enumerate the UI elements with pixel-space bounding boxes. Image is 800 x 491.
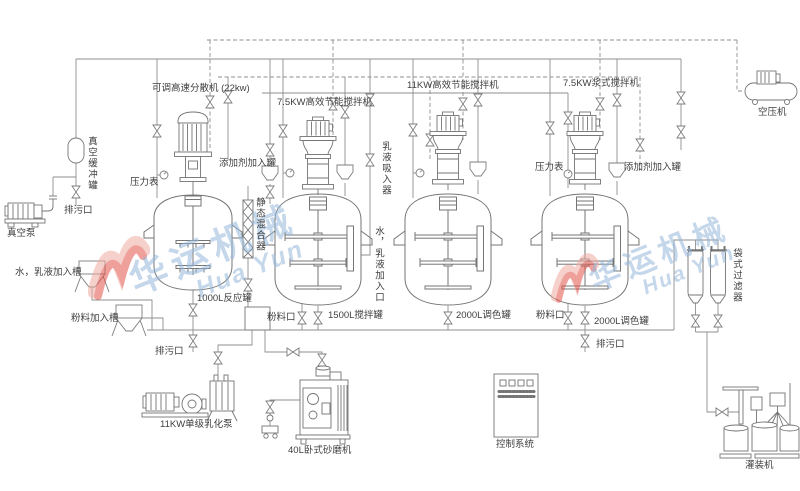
label-mixer-paddle: 7.5KW浆式搅拌机: [563, 79, 639, 89]
label-additive-tank-t4: 添加剂加入罐: [624, 163, 681, 173]
label-tinting-tank-2000l-b: 2000L调色罐: [594, 317, 649, 327]
valve-icon: [266, 144, 274, 156]
valve-icon: [564, 312, 572, 324]
label-drain-t1: 排污口: [155, 347, 184, 357]
label-pressure-gauge-t4: 压力表: [535, 163, 564, 173]
label-additive-tank-t1: 添加剂加入罐: [219, 159, 276, 169]
valve-icon: [266, 401, 274, 413]
valve-icon: [189, 304, 197, 316]
filling-machine: [720, 383, 799, 458]
valve-icon: [444, 312, 452, 324]
label-mixer-11kw: 11KW高效节能搅拌机: [407, 81, 499, 91]
valve-icon: [564, 112, 572, 124]
valve-icon: [266, 186, 274, 198]
valve-icon: [214, 352, 222, 364]
additive-funnel: [609, 163, 625, 177]
mixer-motor: [567, 112, 603, 190]
valve-icon: [318, 354, 326, 366]
valve-icon: [459, 98, 467, 110]
valve-icon: [279, 125, 287, 137]
label-tinting-tank-2000l-a: 2000L调色罐: [456, 311, 511, 321]
label-control-system: 控制系统: [496, 440, 534, 450]
valve-icon: [581, 335, 589, 347]
label-vacuum-buffer-tank: 真空缓冲罐: [86, 136, 96, 191]
control-cabinet: [494, 374, 538, 437]
valve-icon: [677, 92, 685, 104]
label-pressure-gauge-t1: 压力表: [130, 178, 159, 188]
vacuum-buffer-tank: [68, 138, 84, 163]
valve-icon: [244, 279, 252, 291]
valve-icon: [206, 96, 214, 108]
valve-icon: [714, 315, 722, 327]
label-sand-mill: 40L卧式砂磨机: [288, 446, 351, 456]
pressure-gauge-icon: [416, 169, 424, 177]
label-static-mixer: 静态混合器: [254, 197, 264, 252]
reactor-tank-1000l: [144, 195, 242, 290]
valve-icon: [409, 124, 417, 136]
mixer-motor: [300, 117, 336, 195]
label-drain-left: 排污口: [64, 206, 93, 216]
label-water-emulsion-inlet: 水，乳液加入口: [373, 226, 383, 303]
mobile-pump-cart: [262, 415, 278, 438]
pressure-gauge-icon: [564, 170, 572, 178]
emulsify-pump: [142, 375, 237, 421]
valve-icon: [189, 335, 197, 347]
label-vacuum-pump: 真空泵: [7, 229, 36, 239]
valve-icon: [474, 94, 482, 106]
vacuum-pump: [5, 196, 57, 227]
label-powder-port-t2: 粉料口: [267, 313, 296, 323]
valve-icon: [72, 186, 80, 198]
pressure-gauge-icon: [286, 169, 294, 177]
valve-icon: [716, 408, 728, 416]
label-filling-machine: 灌装机: [745, 461, 774, 471]
sand-mill: [296, 366, 350, 444]
label-bag-filter: 袋式过滤器: [731, 248, 741, 303]
label-drain-t4: 排污口: [596, 340, 625, 350]
valve-icon: [581, 312, 589, 324]
mixing-tank-1500l: [264, 194, 372, 305]
bag-filters: [687, 246, 727, 303]
label-powder-hopper: 粉料加入槽: [71, 314, 119, 324]
pressure-gauge-icon: [160, 171, 168, 179]
disperser-motor: [175, 112, 212, 195]
valve-icon: [314, 312, 322, 324]
label-powder-port-t4: 粉料口: [536, 311, 565, 321]
valve-icon: [613, 94, 621, 106]
label-air-compressor: 空压机: [758, 108, 787, 118]
emulsion-suction-funnel: [337, 165, 353, 179]
label-disperser: 可调高速分散机 (22kw): [152, 84, 250, 94]
label-reactor-1000l: 1000L反应罐: [197, 294, 252, 304]
valve-icon: [596, 98, 604, 110]
valve-icon: [298, 312, 306, 324]
valve-icon: [636, 139, 644, 151]
valve-icon: [677, 126, 685, 138]
label-mixing-tank-1500l: 1500L搅拌罐: [328, 311, 383, 321]
process-flow-diagram: 华运机械 Hua Yun 华运机械 Hua Yun 可调高速分散机 (22kw)…: [0, 0, 800, 491]
diagram-linework: [0, 0, 800, 491]
valve-icon: [546, 122, 554, 134]
valve-icon: [153, 125, 161, 137]
tinting-tank-2000l-b: [531, 194, 639, 305]
label-mixer-7-5kw: 7.5KW高效节能搅拌机: [277, 98, 372, 108]
label-emulsion-suction: 乳液吸入器: [380, 141, 390, 196]
mixer-motor: [430, 112, 466, 190]
static-mixer-column: [243, 200, 253, 258]
valve-icon: [287, 348, 299, 356]
valve-icon: [692, 315, 700, 327]
valve-icon: [366, 154, 374, 166]
additive-funnel: [470, 162, 486, 176]
air-compressor: [745, 71, 797, 105]
label-emulsify-pump: 11KW单级乳化泵: [160, 420, 233, 430]
tinting-tank-2000l-a: [394, 194, 502, 305]
label-water-emulsion-hopper: 水，乳液加入槽: [15, 268, 82, 278]
